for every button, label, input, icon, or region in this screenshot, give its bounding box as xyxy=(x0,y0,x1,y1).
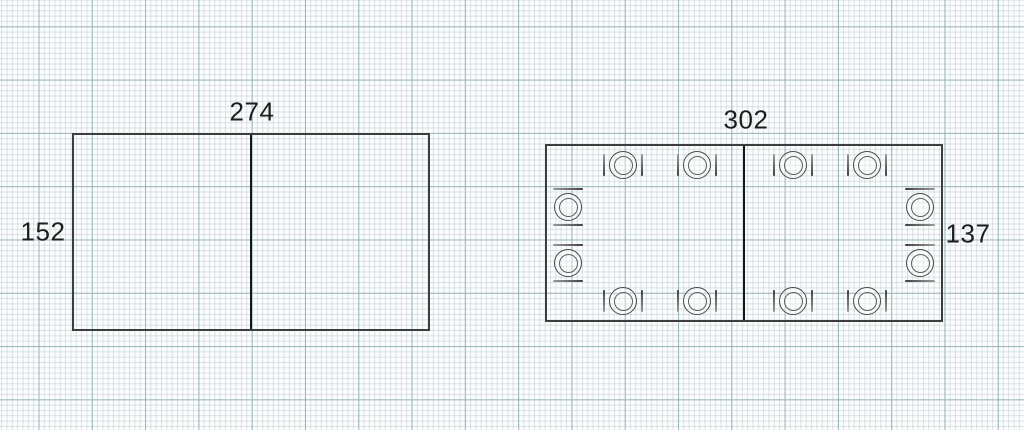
plate-icon xyxy=(853,287,881,315)
knife-icon xyxy=(885,290,887,312)
plate-icon xyxy=(554,249,582,277)
fork-icon xyxy=(847,290,849,312)
plate-inner-ring xyxy=(784,292,803,311)
table-leaf-divider xyxy=(250,135,252,329)
plate-inner-ring xyxy=(688,156,707,175)
place-setting[interactable] xyxy=(843,150,891,180)
knife-icon xyxy=(641,290,643,312)
plate-icon xyxy=(683,151,711,179)
place-setting[interactable] xyxy=(769,286,817,316)
fork-icon xyxy=(773,154,775,176)
knife-icon xyxy=(553,280,583,282)
fork-icon xyxy=(677,290,679,312)
plate-inner-ring xyxy=(614,156,633,175)
plate-inner-ring xyxy=(911,254,930,273)
knife-icon xyxy=(905,280,935,282)
plate-icon xyxy=(906,249,934,277)
dimension-label-width: 274 xyxy=(230,97,275,128)
knife-icon xyxy=(715,290,717,312)
plate-inner-ring xyxy=(784,156,803,175)
place-setting[interactable] xyxy=(673,150,721,180)
place-setting[interactable] xyxy=(551,240,585,286)
knife-icon xyxy=(811,290,813,312)
place-setting[interactable] xyxy=(769,150,817,180)
plate-icon xyxy=(554,193,582,221)
fork-icon xyxy=(905,188,935,190)
knife-icon xyxy=(905,224,935,226)
plate-icon xyxy=(609,287,637,315)
knife-icon xyxy=(811,154,813,176)
plate-icon xyxy=(683,287,711,315)
dimension-label-height: 137 xyxy=(946,219,991,250)
fork-icon xyxy=(773,290,775,312)
plate-inner-ring xyxy=(559,254,578,273)
plate-inner-ring xyxy=(559,198,578,217)
fork-icon xyxy=(847,154,849,176)
place-setting[interactable] xyxy=(599,286,647,316)
plate-icon xyxy=(906,193,934,221)
dimension-label-width: 302 xyxy=(724,105,769,136)
plate-icon xyxy=(853,151,881,179)
plate-inner-ring xyxy=(688,292,707,311)
knife-icon xyxy=(715,154,717,176)
fork-icon xyxy=(603,154,605,176)
plate-icon xyxy=(609,151,637,179)
dimension-label-height: 152 xyxy=(21,217,66,248)
plan-canvas[interactable]: 274 152 xyxy=(0,0,1024,430)
plate-inner-ring xyxy=(911,198,930,217)
plate-icon xyxy=(779,287,807,315)
place-setting[interactable] xyxy=(843,286,891,316)
table-302x137[interactable] xyxy=(545,144,943,322)
fork-icon xyxy=(603,290,605,312)
place-setting[interactable] xyxy=(903,240,937,286)
plate-inner-ring xyxy=(858,292,877,311)
fork-icon xyxy=(553,188,583,190)
place-setting[interactable] xyxy=(551,184,585,230)
place-setting[interactable] xyxy=(673,286,721,316)
table-274x152[interactable] xyxy=(72,133,430,331)
plate-inner-ring xyxy=(858,156,877,175)
plate-icon xyxy=(779,151,807,179)
knife-icon xyxy=(553,224,583,226)
plate-inner-ring xyxy=(614,292,633,311)
fork-icon xyxy=(677,154,679,176)
place-setting[interactable] xyxy=(903,184,937,230)
fork-icon xyxy=(553,244,583,246)
knife-icon xyxy=(641,154,643,176)
place-setting[interactable] xyxy=(599,150,647,180)
fork-icon xyxy=(905,244,935,246)
knife-icon xyxy=(885,154,887,176)
table-leaf-divider xyxy=(743,146,745,320)
